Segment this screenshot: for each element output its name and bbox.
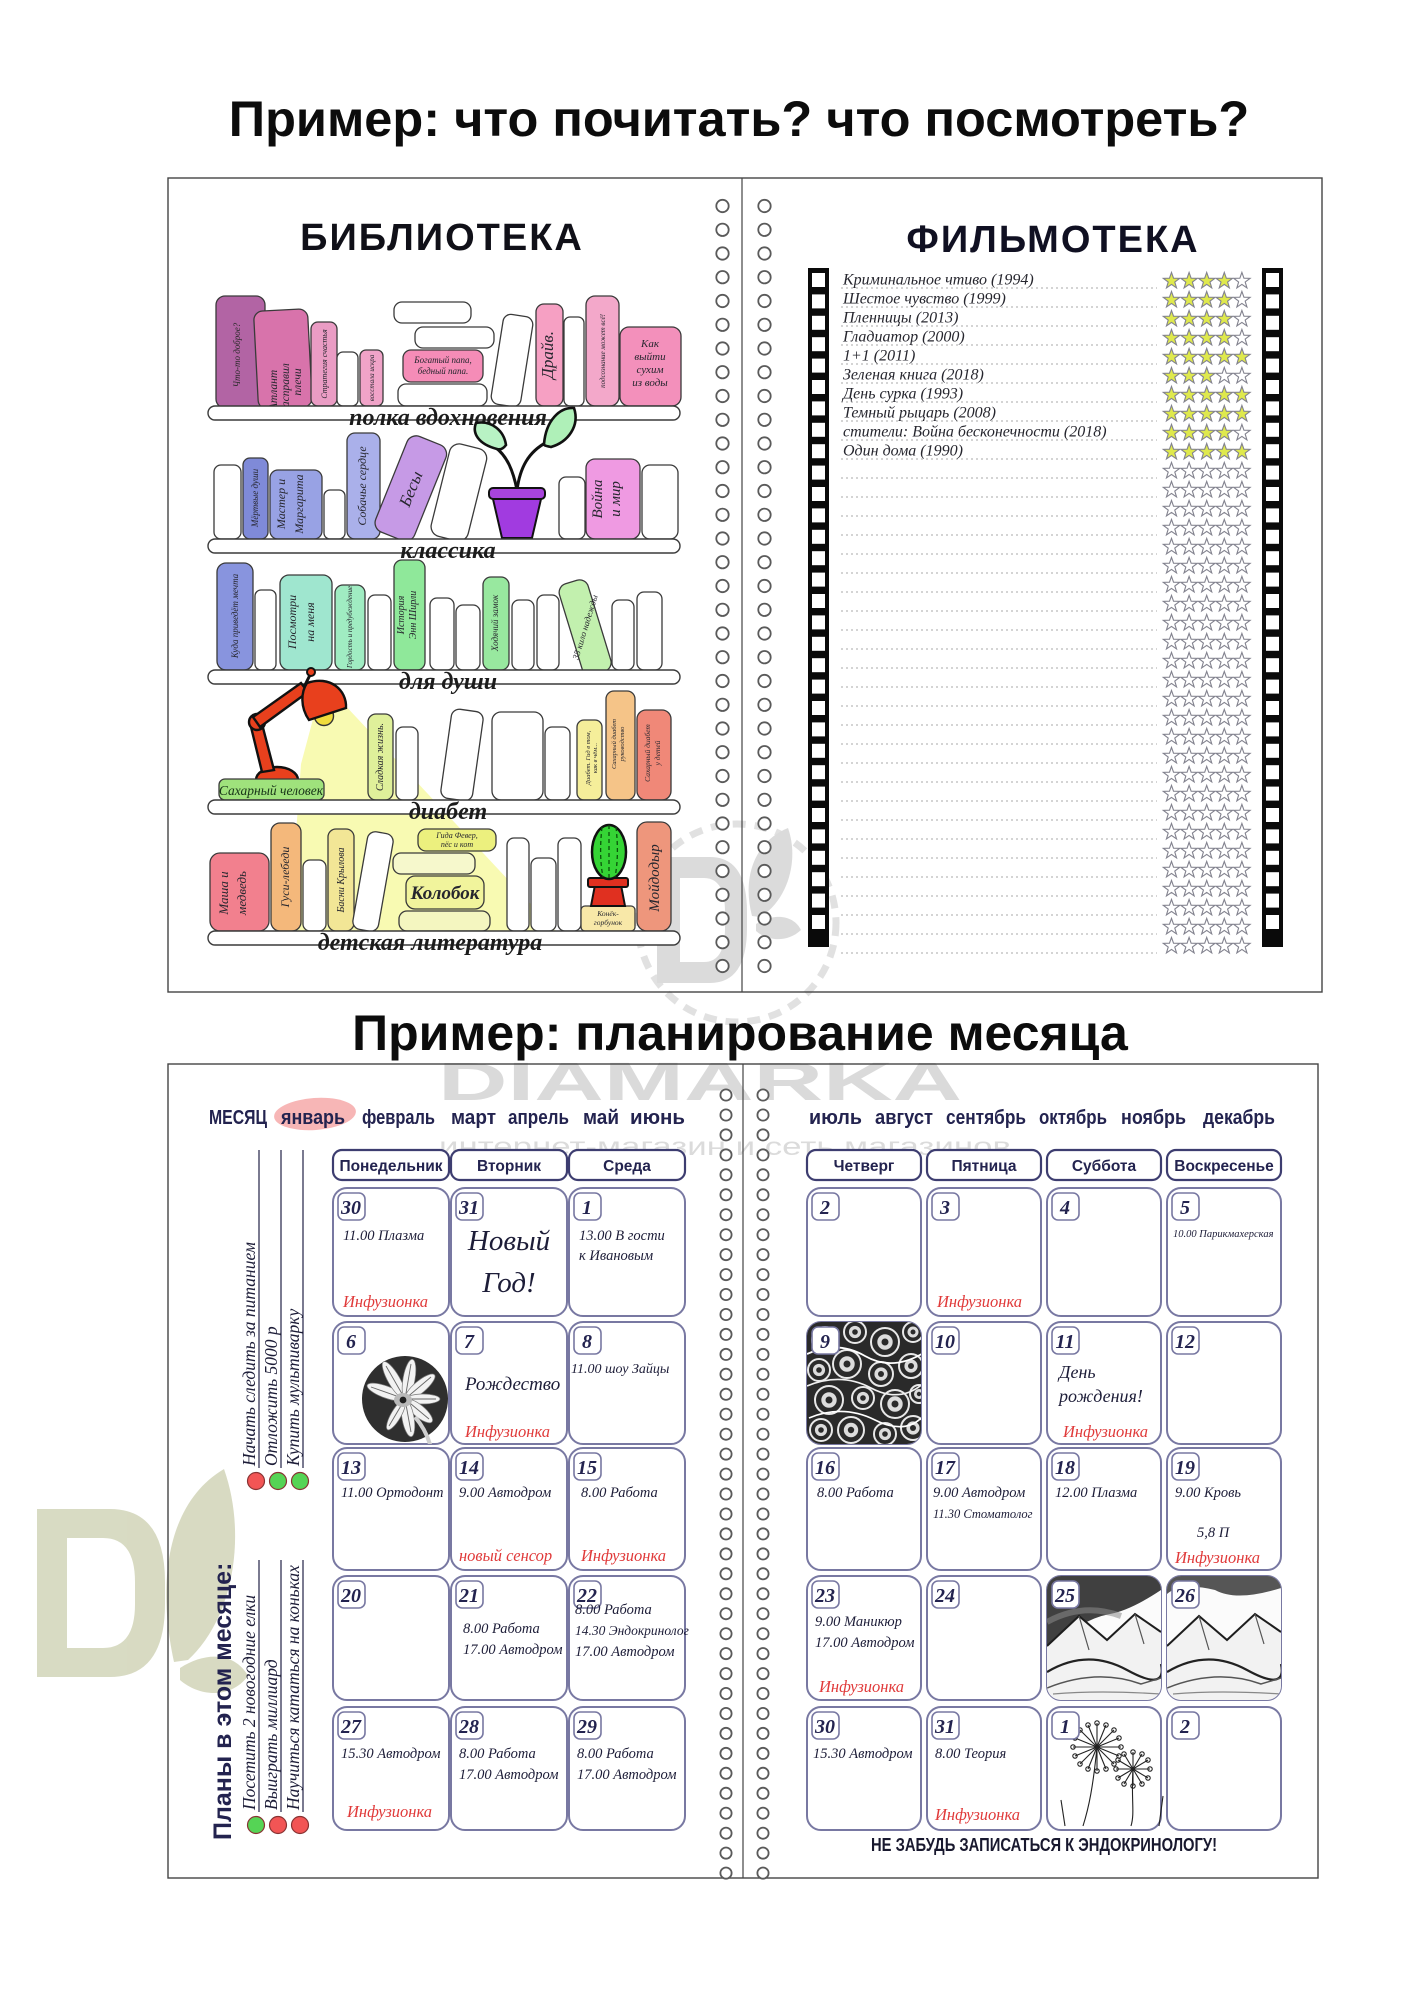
svg-text:новый сенсор: новый сенсор (459, 1546, 552, 1565)
svg-text:30: 30 (814, 1716, 835, 1738)
svg-text:апрель: апрель (508, 1107, 569, 1129)
svg-text:15.30 Автодром: 15.30 Автодром (341, 1746, 440, 1762)
svg-text:20: 20 (340, 1585, 361, 1607)
svg-text:24: 24 (934, 1585, 955, 1607)
svg-text:10: 10 (935, 1331, 955, 1353)
svg-text:31: 31 (458, 1197, 479, 1219)
svg-text:декабрь: декабрь (1203, 1107, 1275, 1129)
svg-text:17: 17 (935, 1457, 956, 1479)
svg-text:Новый: Новый (467, 1225, 551, 1257)
svg-text:12: 12 (1175, 1331, 1195, 1353)
svg-text:8.00 Работа: 8.00 Работа (581, 1485, 658, 1501)
svg-text:19: 19 (1175, 1457, 1195, 1479)
svg-text:26: 26 (1174, 1585, 1195, 1607)
svg-text:Инфузионка: Инфузионка (1062, 1422, 1148, 1441)
svg-text:9.00 Кровь: 9.00 Кровь (1175, 1485, 1241, 1501)
svg-text:8.00 Работа: 8.00 Работа (459, 1746, 536, 1762)
svg-text:7: 7 (464, 1331, 475, 1353)
svg-text:11.00 Плазма: 11.00 Плазма (343, 1228, 424, 1244)
svg-text:3: 3 (939, 1197, 950, 1219)
svg-text:9.00 Маникюр: 9.00 Маникюр (815, 1614, 902, 1630)
svg-text:31: 31 (934, 1716, 955, 1738)
svg-text:Четверг: Четверг (834, 1158, 895, 1175)
svg-text:17.00 Автодром: 17.00 Автодром (575, 1644, 674, 1660)
svg-text:25: 25 (1054, 1585, 1075, 1607)
svg-text:13.00 В гости: 13.00 В гости (579, 1228, 665, 1244)
svg-text:13: 13 (341, 1457, 361, 1479)
svg-text:Инфузионка: Инфузионка (1174, 1548, 1260, 1567)
svg-text:ноябрь: ноябрь (1121, 1107, 1186, 1129)
svg-text:март: март (451, 1107, 496, 1129)
svg-text:14.30 Эндокринолог: 14.30 Эндокринолог (575, 1623, 689, 1638)
svg-text:8: 8 (582, 1331, 592, 1353)
svg-text:12.00 Плазма: 12.00 Плазма (1055, 1485, 1137, 1501)
svg-text:17.00 Автодром: 17.00 Автодром (463, 1642, 562, 1658)
svg-text:10.00 Парикмахерская: 10.00 Парикмахерская (1173, 1229, 1274, 1240)
svg-text:октябрь: октябрь (1039, 1107, 1107, 1129)
svg-text:Инфузионка: Инфузионка (346, 1802, 432, 1821)
svg-text:НЕ ЗАБУДЬ ЗАПИСАТЬСЯ К ЭНДОКРИ: НЕ ЗАБУДЬ ЗАПИСАТЬСЯ К ЭНДОКРИНОЛОГУ! (871, 1834, 1217, 1855)
svg-text:15: 15 (577, 1457, 597, 1479)
svg-text:16: 16 (815, 1457, 835, 1479)
svg-text:1: 1 (1060, 1716, 1070, 1738)
svg-text:8.00 Теория: 8.00 Теория (935, 1746, 1007, 1762)
svg-text:август: август (875, 1107, 933, 1129)
svg-text:18: 18 (1055, 1457, 1075, 1479)
svg-text:2: 2 (1179, 1716, 1190, 1738)
svg-text:15.30 Автодром: 15.30 Автодром (813, 1746, 912, 1762)
svg-text:6: 6 (346, 1331, 356, 1353)
svg-text:4: 4 (1059, 1197, 1070, 1219)
svg-text:14: 14 (459, 1457, 479, 1479)
svg-text:11.00 Ортодонт: 11.00 Ортодонт (341, 1485, 443, 1501)
svg-text:5: 5 (1180, 1197, 1190, 1219)
svg-text:11.00 шоу Зайцы: 11.00 шоу Зайцы (571, 1362, 669, 1377)
svg-text:2: 2 (819, 1197, 830, 1219)
svg-text:Отложить 5000 р: Отложить 5000 р (261, 1326, 281, 1466)
svg-text:30: 30 (340, 1197, 361, 1219)
svg-text:Пятница: Пятница (951, 1158, 1016, 1175)
svg-text:к Ивановым: к Ивановым (579, 1248, 653, 1264)
svg-text:Инфузионка: Инфузионка (464, 1422, 550, 1441)
svg-text:8.00 Работа: 8.00 Работа (575, 1602, 652, 1618)
svg-text:8.00 Работа: 8.00 Работа (577, 1746, 654, 1762)
svg-text:январь: январь (280, 1107, 345, 1129)
svg-text:Инфузионка: Инфузионка (934, 1805, 1020, 1824)
svg-text:Посетить 2 новогодние елки: Посетить 2 новогодние елки (239, 1595, 259, 1811)
svg-text:Планы в этом месяце:: Планы в этом месяце: (209, 1563, 237, 1840)
svg-text:9.00 Автодром: 9.00 Автодром (459, 1485, 551, 1501)
svg-text:июль: июль (809, 1107, 862, 1129)
svg-text:29: 29 (576, 1716, 597, 1738)
svg-text:рождения!: рождения! (1057, 1386, 1143, 1406)
svg-text:11: 11 (1056, 1331, 1075, 1353)
svg-text:Инфузионка: Инфузионка (580, 1546, 666, 1565)
svg-text:Инфузионка: Инфузионка (936, 1292, 1022, 1311)
svg-text:Купить мультиварку: Купить мультиварку (283, 1309, 303, 1467)
svg-text:сентябрь: сентябрь (946, 1107, 1026, 1129)
svg-text:8.00 Работа: 8.00 Работа (463, 1621, 540, 1637)
svg-text:Инфузионка: Инфузионка (818, 1677, 904, 1696)
svg-text:8.00 Работа: 8.00 Работа (817, 1485, 894, 1501)
svg-text:23: 23 (814, 1585, 835, 1607)
svg-text:17.00 Автодром: 17.00 Автодром (459, 1767, 558, 1783)
svg-text:9: 9 (820, 1331, 830, 1353)
svg-text:28: 28 (458, 1716, 479, 1738)
svg-text:Понедельник: Понедельник (339, 1158, 442, 1175)
svg-text:Научиться кататься на коньках: Научиться кататься на коньках (283, 1565, 303, 1811)
svg-text:17.00 Автодром: 17.00 Автодром (577, 1767, 676, 1783)
svg-text:Год!: Год! (481, 1267, 535, 1299)
svg-text:Воскресенье: Воскресенье (1174, 1158, 1274, 1175)
svg-text:Начать следить за питанием: Начать следить за питанием (239, 1242, 259, 1467)
svg-text:5,8 П: 5,8 П (1197, 1525, 1231, 1541)
svg-text:Инфузионка: Инфузионка (342, 1292, 428, 1311)
svg-text:Суббота: Суббота (1072, 1158, 1137, 1175)
svg-text:май: май (583, 1107, 619, 1129)
svg-text:11.30 Стоматолог: 11.30 Стоматолог (933, 1507, 1033, 1521)
svg-text:Рождество: Рождество (464, 1374, 560, 1395)
svg-text:Выиграть миллиард: Выиграть миллиард (261, 1659, 281, 1810)
svg-text:27: 27 (340, 1716, 362, 1738)
svg-text:МЕСЯЦ: МЕСЯЦ (209, 1107, 267, 1129)
svg-text:День: День (1057, 1362, 1096, 1382)
svg-text:Вторник: Вторник (477, 1158, 541, 1175)
svg-text:9.00 Автодром: 9.00 Автодром (933, 1485, 1025, 1501)
svg-text:21: 21 (458, 1585, 479, 1607)
svg-text:17.00 Автодром: 17.00 Автодром (815, 1635, 914, 1651)
svg-text:1: 1 (582, 1197, 592, 1219)
svg-text:февраль: февраль (362, 1107, 435, 1129)
svg-text:июнь: июнь (630, 1107, 685, 1129)
svg-text:Среда: Среда (603, 1158, 651, 1175)
